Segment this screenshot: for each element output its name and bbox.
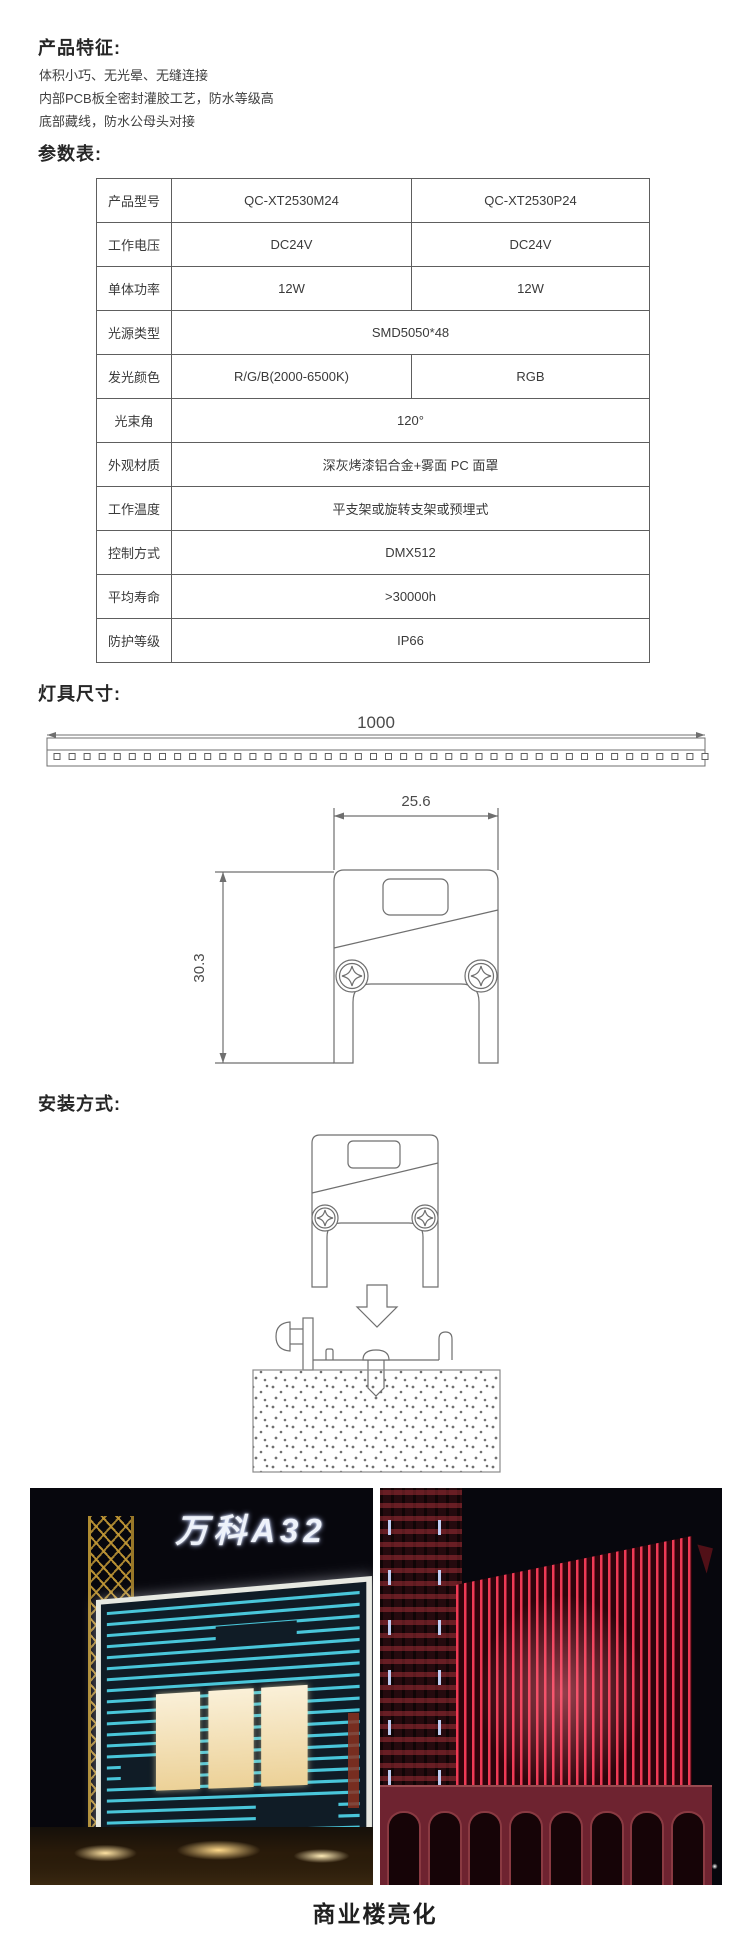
arch — [468, 1811, 502, 1885]
stripe-gap — [256, 1803, 338, 1822]
window — [208, 1688, 253, 1789]
height-dim-label: 30.3 — [191, 953, 208, 982]
arch — [428, 1811, 462, 1885]
red-banner — [348, 1713, 359, 1808]
spec-label: 工作电压 — [97, 223, 172, 267]
wiring-window — [383, 879, 448, 915]
specs-heading: 参数表: — [38, 140, 102, 166]
arch — [509, 1811, 543, 1885]
spec-value: IP66 — [172, 619, 650, 663]
bracket-hook — [439, 1332, 452, 1360]
arch — [590, 1811, 624, 1885]
table-row: 光束角 120° — [97, 399, 650, 443]
spec-table: 产品型号 QC-XT2530M24 QC-XT2530P24 工作电压 DC24… — [96, 178, 650, 663]
installation-heading: 安装方式: — [38, 1090, 121, 1116]
table-row: 光源类型 SMD5050*48 — [97, 311, 650, 355]
application-photo-cyan-building: 万科A32 — [30, 1488, 373, 1885]
arch — [671, 1811, 705, 1885]
feature-line: 底部藏线，防水公母头对接 — [39, 110, 274, 133]
spec-value: SMD5050*48 — [172, 311, 650, 355]
application-photo-red-tower — [380, 1488, 722, 1885]
spec-label: 单体功率 — [97, 267, 172, 311]
features-heading: 产品特征: — [38, 34, 121, 60]
feature-line: 体积小巧、无光晕、无缝连接 — [39, 64, 274, 87]
flag — [691, 1544, 713, 1573]
lamp-length-drawing: 1000 — [30, 698, 720, 778]
length-dim-label: 1000 — [357, 713, 395, 732]
bracket-tab — [326, 1349, 333, 1360]
arch — [387, 1811, 421, 1885]
spec-label: 防护等级 — [97, 619, 172, 663]
spec-value: QC-XT2530P24 — [412, 179, 650, 223]
spec-value: >30000h — [172, 575, 650, 619]
podium-arches — [380, 1785, 712, 1885]
spec-value: DC24V — [412, 223, 650, 267]
spec-value: 120° — [172, 399, 650, 443]
screw-icon — [312, 1205, 338, 1231]
table-row: 防护等级 IP66 — [97, 619, 650, 663]
width-dim-label: 25.6 — [401, 793, 430, 810]
spec-value: 深灰烤漆铝合金+雾面 PC 面罩 — [172, 443, 650, 487]
gallery-caption: 商业楼亮化 — [0, 1895, 750, 1929]
spec-value: DC24V — [172, 223, 412, 267]
window — [261, 1685, 307, 1787]
table-row: 平均寿命 >30000h — [97, 575, 650, 619]
table-row: 控制方式 DMX512 — [97, 531, 650, 575]
down-arrow-icon — [357, 1285, 397, 1327]
spec-label: 光源类型 — [97, 311, 172, 355]
spec-label: 发光颜色 — [97, 355, 172, 399]
table-row: 产品型号 QC-XT2530M24 QC-XT2530P24 — [97, 179, 650, 223]
product-spec-page: 产品特征: 体积小巧、无光晕、无缝连接 内部PCB板全密封灌胶工艺，防水等级高 … — [0, 0, 750, 1953]
screw-icon — [412, 1205, 438, 1231]
spec-value: 12W — [172, 267, 412, 311]
lamp-section-drawing: 25.6 30.3 — [170, 786, 530, 1081]
table-row: 外观材质 深灰烤漆铝合金+雾面 PC 面罩 — [97, 443, 650, 487]
spec-label: 工作温度 — [97, 487, 172, 531]
features-list: 体积小巧、无光晕、无缝连接 内部PCB板全密封灌胶工艺，防水等级高 底部藏线，防… — [39, 64, 274, 133]
spec-value: DMX512 — [172, 531, 650, 575]
led-chips-row — [54, 754, 708, 760]
spec-label: 产品型号 — [97, 179, 172, 223]
window — [156, 1691, 200, 1791]
spec-value: RGB — [412, 355, 650, 399]
spec-label: 外观材质 — [97, 443, 172, 487]
anchor-head — [363, 1350, 389, 1360]
building-sign: 万科A32 — [126, 1504, 373, 1552]
screw-icon — [465, 960, 497, 992]
wiring-window — [348, 1141, 400, 1168]
arch — [549, 1811, 583, 1885]
concrete-wall — [253, 1370, 500, 1472]
screw-icon — [336, 960, 368, 992]
spec-label: 平均寿命 — [97, 575, 172, 619]
spec-value: R/G/B(2000-6500K) — [172, 355, 412, 399]
storefront-lights — [30, 1827, 373, 1885]
building-facade — [96, 1576, 372, 1868]
installation-drawing — [230, 1123, 520, 1488]
spec-value: 12W — [412, 267, 650, 311]
feature-line: 内部PCB板全密封灌胶工艺，防水等级高 — [39, 87, 274, 110]
arch — [630, 1811, 664, 1885]
spec-label: 控制方式 — [97, 531, 172, 575]
table-row: 单体功率 12W 12W — [97, 267, 650, 311]
table-row: 发光颜色 R/G/B(2000-6500K) RGB — [97, 355, 650, 399]
table-row: 工作电压 DC24V DC24V — [97, 223, 650, 267]
spec-value: QC-XT2530M24 — [172, 179, 412, 223]
table-row: 工作温度 平支架或旋转支架或预埋式 — [97, 487, 650, 531]
bolt-head — [276, 1322, 290, 1351]
spec-value: 平支架或旋转支架或预埋式 — [172, 487, 650, 531]
spec-label: 光束角 — [97, 399, 172, 443]
